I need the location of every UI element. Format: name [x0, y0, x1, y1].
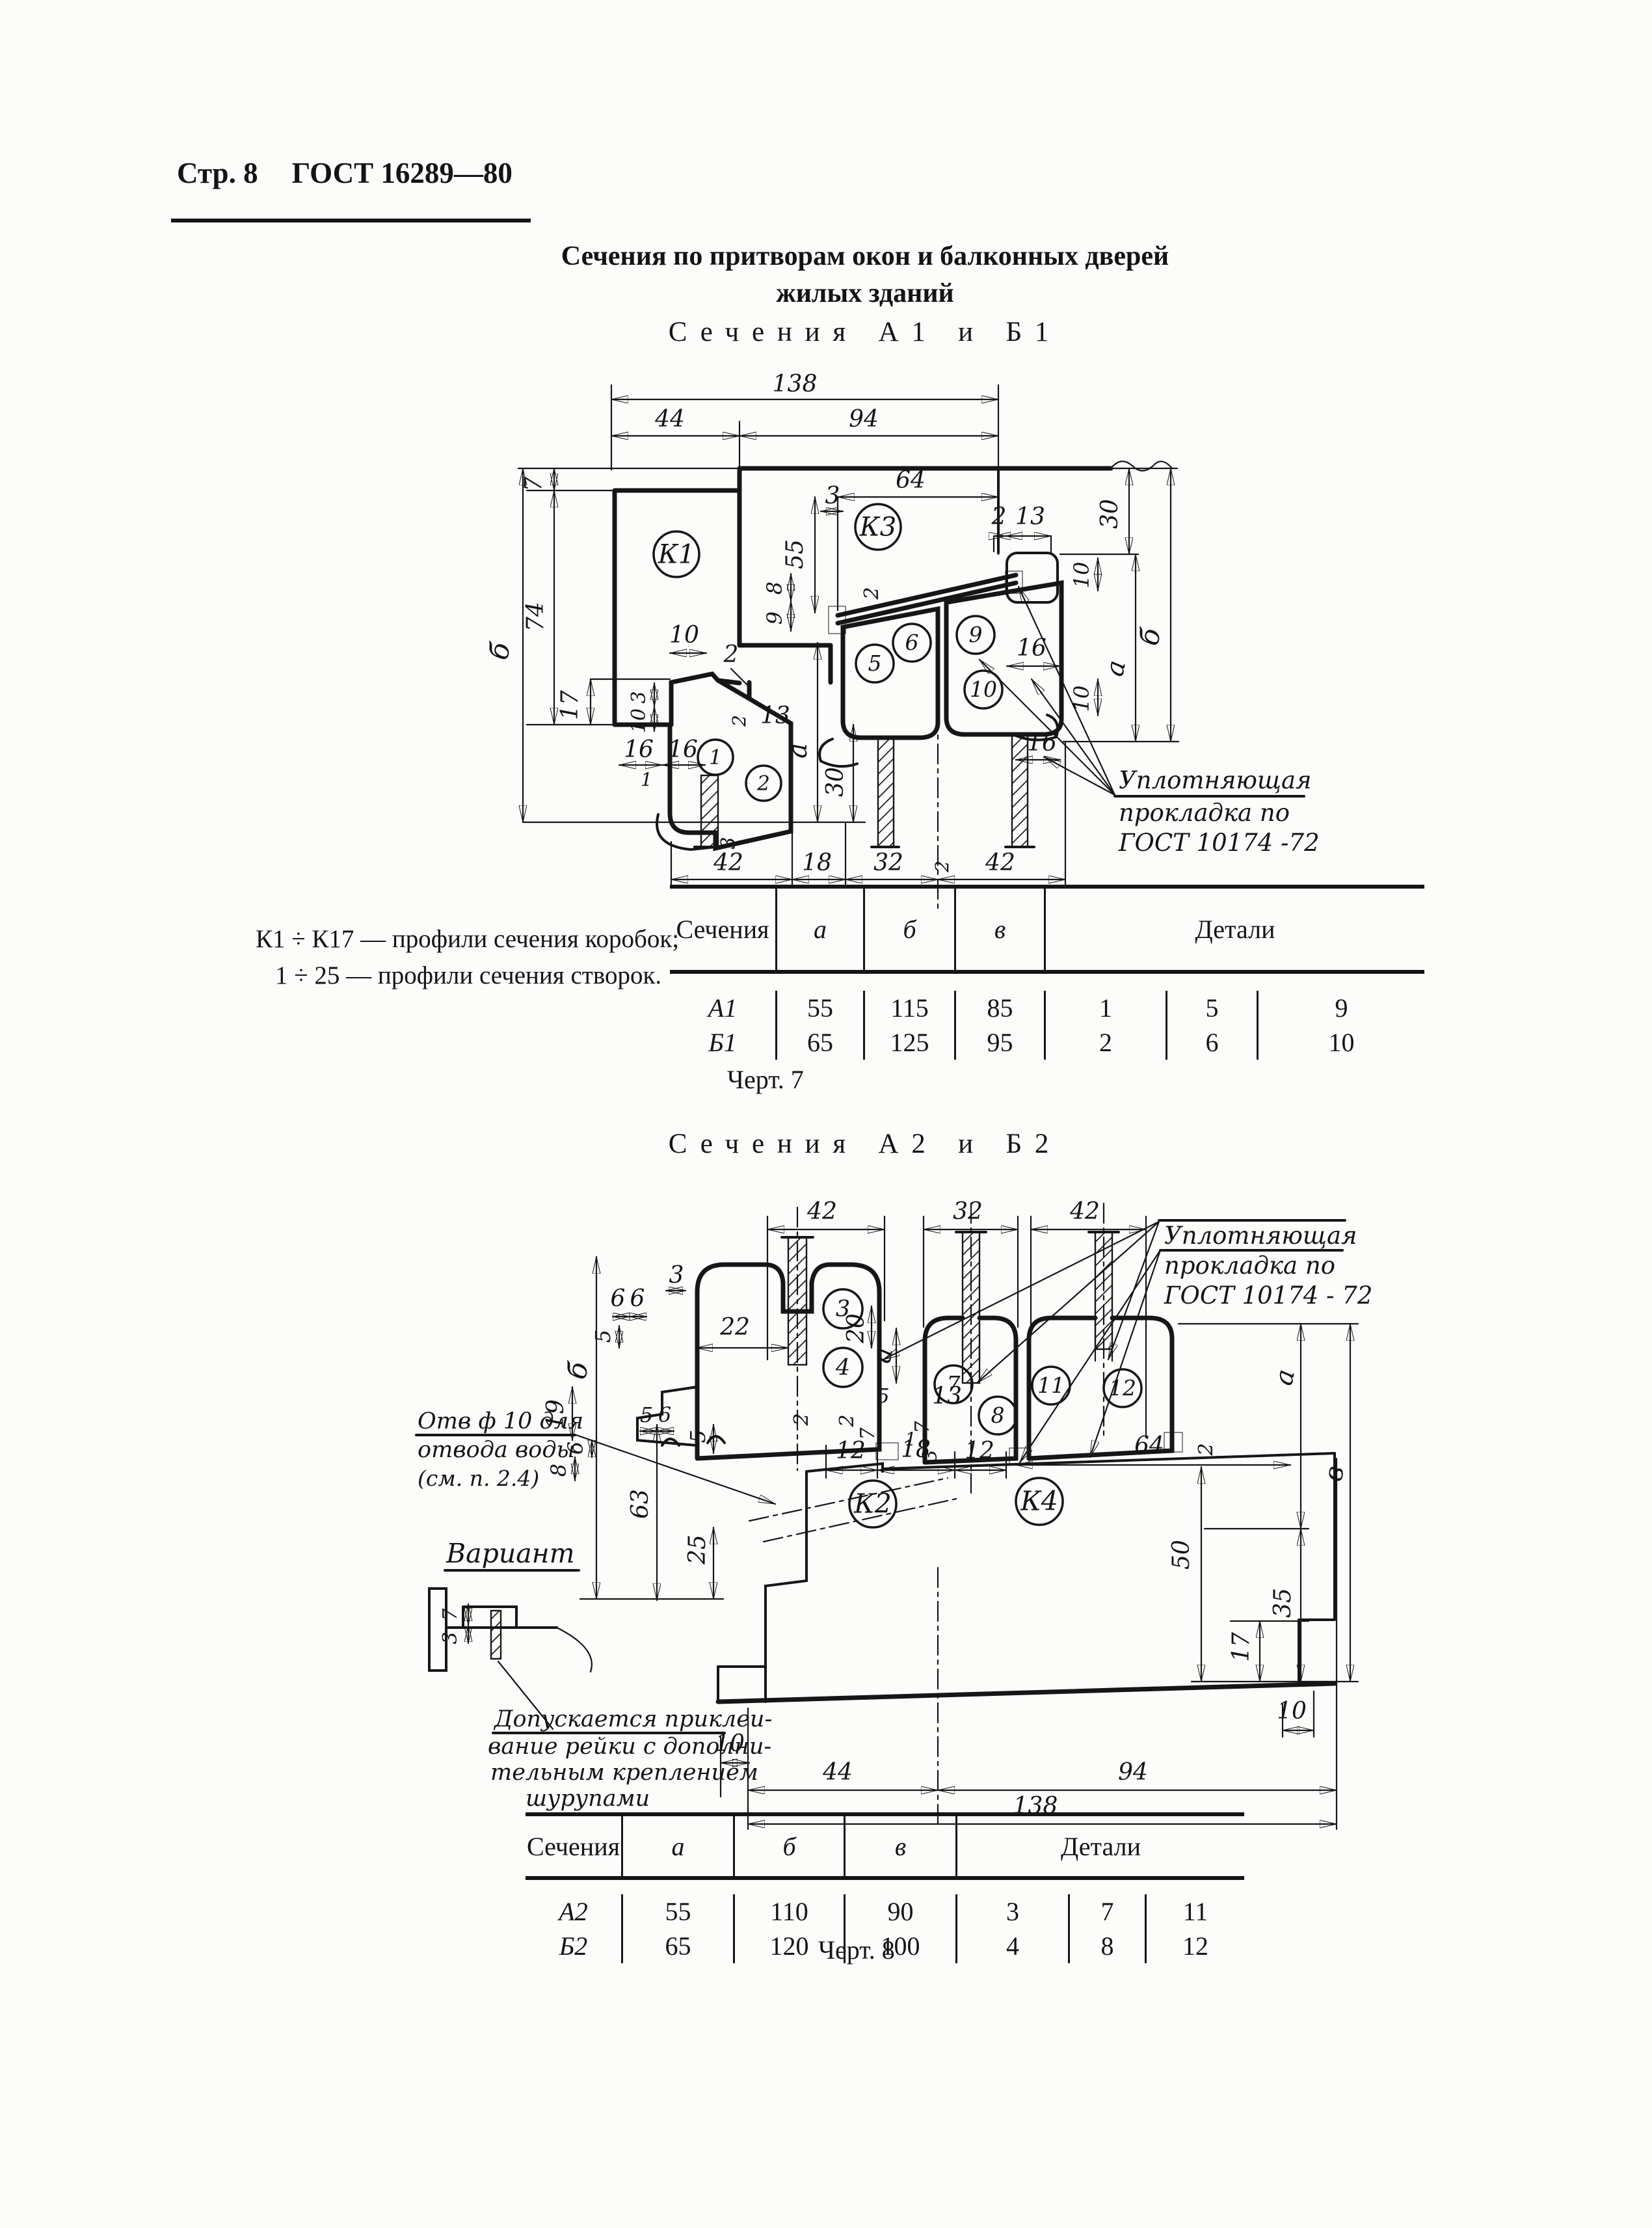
table-sections-a1-b1: Сечения а б в Детали А1 55 115 85 1 5 9 … [670, 885, 1424, 1079]
table-cell: А2 [526, 1894, 623, 1929]
d1-dim-labels: 13844947б7417645538922133010ба1610161023… [482, 371, 1319, 876]
drawing-sections-a1-b1: 13844947б7417645538922133010ба1610161023… [455, 359, 1431, 932]
table-cell: 1 [1046, 991, 1167, 1025]
dim-label: 44 [822, 1759, 853, 1786]
part-number-label: К2 [853, 1488, 892, 1520]
table-cell: 65 [623, 1929, 735, 1963]
table-cell: 8 [1070, 1929, 1147, 1963]
dim-label: шурупами [526, 1786, 650, 1812]
dim-label: 13 [1015, 503, 1045, 530]
profile-note: К1 ÷ К17 — профили сечения коробок; 1 ÷ … [256, 921, 679, 994]
table-cell: 4 [957, 1929, 1070, 1963]
table-cell: 55 [623, 1894, 735, 1929]
table-cell: 90 [846, 1894, 957, 1929]
dim-label: 8 [762, 582, 787, 595]
figure-caption-8: Черт. 8 [818, 1935, 895, 1965]
dim-label: 42 [985, 850, 1015, 876]
figure-caption-7: Черт. 7 [727, 1064, 804, 1095]
table2-col-a: а [623, 1816, 735, 1876]
dim-label: 12 [965, 1438, 994, 1464]
dim-label: 2 [931, 861, 953, 873]
dim-label: 7 [520, 476, 547, 491]
dim-label: 2 [728, 715, 750, 727]
table-cell: 5 [1167, 991, 1259, 1025]
part-number-label: К4 [1020, 1486, 1058, 1517]
dim-label: тельным креплением [490, 1760, 758, 1786]
dim-label: 12 [836, 1438, 866, 1464]
table-cell: 95 [956, 1025, 1046, 1060]
dim-label: 2 [991, 503, 1007, 530]
dim-label: прокладка по [1119, 799, 1290, 827]
part-number-label: 2 [756, 772, 770, 795]
title-line-2: жилых зданий [416, 275, 1314, 312]
dim-label: в [1318, 1463, 1350, 1484]
dim-label: 3 [628, 691, 650, 703]
part-number-label: 4 [835, 1354, 850, 1380]
dim-label: Допускается приклеи- [493, 1706, 772, 1732]
dim-label: Вариант [446, 1538, 575, 1569]
dim-label: 6 [611, 1285, 626, 1312]
table-cell: Б2 [526, 1929, 623, 1963]
table-cell: 85 [956, 991, 1046, 1025]
dim-label: 16 [624, 736, 654, 763]
dim-label: 17 [1228, 1632, 1255, 1662]
part-number-label: К3 [859, 512, 896, 542]
dim-label: 6 [658, 1403, 671, 1427]
dim-label: 2 [1195, 1443, 1218, 1456]
table-cell: 110 [735, 1894, 846, 1929]
dim-label: 3 [717, 837, 740, 849]
drawing-sections-a2-b2: 42324222Уплотняющаяпрокладка поГОСТ 1017… [359, 1164, 1367, 1841]
table-cell: 10 [1259, 1025, 1424, 1060]
table-cell: 65 [777, 1025, 865, 1060]
table-cell: 125 [865, 1025, 956, 1060]
table2-col-b: б [735, 1816, 846, 1876]
table2-col-details: Детали [957, 1816, 1244, 1876]
dim-label: б [1132, 625, 1167, 649]
note-line-2: 1 ÷ 25 — профили сечения створок. [275, 958, 679, 994]
table1-col-a: а [777, 889, 865, 970]
dim-label: 9 [762, 611, 787, 624]
header-rule [171, 219, 531, 222]
dim-label: 138 [773, 371, 818, 397]
dim-label: 25 [684, 1535, 711, 1565]
table1-body: А1 55 115 85 1 5 9 Б1 65 125 95 2 6 10 [670, 974, 1424, 1079]
dim-label: 32 [953, 1198, 983, 1225]
dim-label: 6 [630, 1285, 645, 1312]
table-cell: 7 [1070, 1894, 1147, 1929]
dim-label: 94 [1118, 1759, 1148, 1786]
dim-label: а [1099, 658, 1132, 679]
dim-label: 50 [1168, 1540, 1195, 1570]
dim-label: 35 [1270, 1588, 1296, 1618]
dim-label: 16 [668, 736, 698, 763]
dim-label: 55 [782, 539, 808, 569]
dim-label: Уплотняющая [1164, 1222, 1357, 1250]
dim-label: 32 [873, 850, 903, 876]
dim-label: 10 [628, 708, 650, 733]
table-cell: 6 [1167, 1025, 1259, 1060]
dim-label: ГОСТ 10174 -72 [1118, 829, 1320, 857]
dim-label: 7 [911, 1421, 934, 1434]
table1-col-sections: Сечения [670, 889, 777, 970]
dim-label: а [1268, 1367, 1301, 1388]
dim-label: 16 [1017, 635, 1046, 662]
table-cell: 3 [957, 1894, 1070, 1929]
document-page: Стр. 8ГОСТ 16289—80 Сечения по притворам… [0, 0, 1652, 2228]
dim-label: прокладка по [1164, 1252, 1335, 1280]
table-cell: 12 [1147, 1929, 1244, 1963]
dim-label: 30 [1097, 499, 1123, 529]
part-number-label: 5 [868, 651, 882, 676]
dim-label: 42 [713, 850, 743, 876]
dim-label: 18 [802, 850, 832, 876]
page-title: Сечения по притворам окон и балконных дв… [416, 238, 1314, 312]
dim-label: Отв ф 10 для [418, 1408, 583, 1434]
dim-label: 2 [860, 587, 883, 600]
dim-label: 22 [719, 1314, 750, 1341]
dim-label: 42 [1069, 1198, 1100, 1225]
dim-label: Уплотняющая [1119, 766, 1312, 794]
dim-label: 3 [825, 483, 840, 509]
part-number-label: 8 [991, 1403, 1005, 1428]
dim-label: 64 [896, 467, 926, 494]
table1-header-row: Сечения а б в Детали [670, 885, 1424, 974]
table1-col-v: в [956, 889, 1046, 970]
section-a1-b1-heading: Сечения А1 и Б1 [416, 316, 1314, 348]
table1-col-b: б [865, 889, 956, 970]
dim-label: 2 [723, 641, 739, 668]
dim-label: а [783, 743, 813, 758]
dim-label: б [560, 1359, 594, 1382]
dim-label: 44 [654, 406, 685, 433]
part-number-label: 10 [970, 677, 997, 702]
section-a2-b2-heading: Сечения А2 и Б2 [416, 1128, 1314, 1160]
dim-label: 10 [1069, 562, 1094, 589]
dim-label: отвода воды [418, 1437, 575, 1463]
part-number-label: 11 [1037, 1373, 1065, 1398]
table2-col-sections: Сечения [526, 1816, 623, 1876]
dim-label: 3 [439, 1631, 462, 1644]
dim-label: 8 [546, 1464, 571, 1477]
dim-label: 42 [806, 1198, 837, 1225]
dim-label: 18 [901, 1436, 931, 1463]
table-cell: Б1 [670, 1025, 777, 1060]
dim-label: 30 [822, 767, 849, 797]
dim-label: 7 [439, 1608, 462, 1621]
part-number-label: 12 [1109, 1375, 1136, 1401]
dim-label: (см. п. 2.4) [418, 1466, 539, 1491]
part-number-label: 6 [905, 630, 919, 655]
dim-label: 5 [640, 1403, 653, 1427]
part-number-label: 9 [969, 622, 983, 647]
dim-label: 94 [849, 406, 879, 433]
note-line-1: К1 ÷ К17 — профили сечения коробок; [256, 921, 679, 958]
dim-label: 2 [836, 1414, 859, 1427]
dim-label: 2 [790, 1413, 813, 1426]
dim-label: 64 [1134, 1432, 1164, 1459]
table2-col-v: в [846, 1816, 957, 1876]
table-cell: 55 [777, 991, 865, 1025]
dim-label: 63 [627, 1489, 654, 1519]
table-cell: А1 [670, 991, 777, 1025]
dim-label: 16 [1027, 730, 1057, 757]
table1-col-details: Детали [1046, 889, 1424, 970]
dim-label: 10 [1277, 1698, 1307, 1725]
dim-label: вание рейки с дополни- [488, 1734, 771, 1760]
table-cell: 115 [865, 991, 956, 1025]
table-cell: 2 [1046, 1025, 1167, 1060]
dim-label: 17 [557, 690, 583, 720]
dim-label: 3 [669, 1262, 684, 1289]
part-number-label: 1 [709, 745, 722, 769]
page-number-label: Стр. 8 [177, 157, 258, 189]
d1-dimension-lines [523, 385, 1179, 887]
dim-label: 10 [1069, 686, 1094, 712]
page-header: Стр. 8ГОСТ 16289—80 [177, 156, 513, 190]
dim-label: 5 [877, 1385, 889, 1408]
part-number-label: К1 [658, 539, 695, 569]
part-number-label: 7 [947, 1371, 961, 1397]
dim-label: а [866, 1345, 899, 1366]
dim-label: 13 [760, 703, 790, 729]
standard-number: ГОСТ 16289—80 [292, 157, 513, 189]
table-cell: 9 [1259, 991, 1424, 1025]
part-number-label: 3 [836, 1296, 850, 1322]
dim-label: 5 [686, 1430, 710, 1443]
table2-header-row: Сечения а б в Детали [526, 1812, 1244, 1880]
title-line-1: Сечения по притворам окон и балконных дв… [416, 238, 1314, 275]
dim-label: 5 [591, 1330, 615, 1343]
dim-label: ГОСТ 10174 - 72 [1164, 1282, 1372, 1309]
dim-label: 74 [522, 602, 549, 632]
dim-label: 10 [669, 622, 699, 649]
dim-label: 1 [641, 769, 652, 790]
dim-label: б [482, 639, 516, 663]
table-cell: 11 [1147, 1894, 1244, 1929]
